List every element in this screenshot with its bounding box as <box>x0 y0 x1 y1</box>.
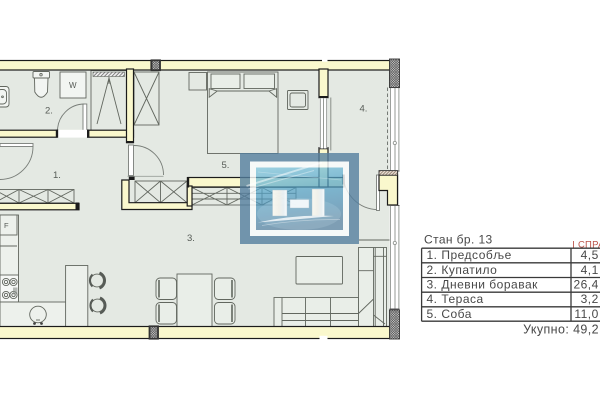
svg-text:5. Соба: 5. Соба <box>427 307 472 321</box>
svg-text:4. Тераса: 4. Тераса <box>427 292 484 306</box>
svg-text:3,2: 3,2 <box>581 292 599 306</box>
svg-text:4.: 4. <box>360 104 368 115</box>
svg-text:4,1: 4,1 <box>581 263 599 277</box>
svg-text:3.: 3. <box>187 233 195 244</box>
svg-text:W: W <box>69 81 77 90</box>
svg-text:5.: 5. <box>222 160 230 171</box>
svg-text:Укупно: 49,2: Укупно: 49,2 <box>523 323 599 337</box>
svg-text:2.: 2. <box>45 106 53 117</box>
svg-text:3. Дневни боравак: 3. Дневни боравак <box>427 278 539 292</box>
svg-text:4,5: 4,5 <box>581 248 599 262</box>
svg-text:1.: 1. <box>53 170 61 181</box>
svg-text:11,0: 11,0 <box>574 307 598 321</box>
svg-text:1. Предсобље: 1. Предсобље <box>427 248 512 262</box>
svg-text:F: F <box>4 221 9 230</box>
svg-text:2. Купатило: 2. Купатило <box>427 263 498 277</box>
svg-text:Стан бр. 13: Стан бр. 13 <box>424 233 493 247</box>
svg-text:26,4: 26,4 <box>573 278 598 292</box>
